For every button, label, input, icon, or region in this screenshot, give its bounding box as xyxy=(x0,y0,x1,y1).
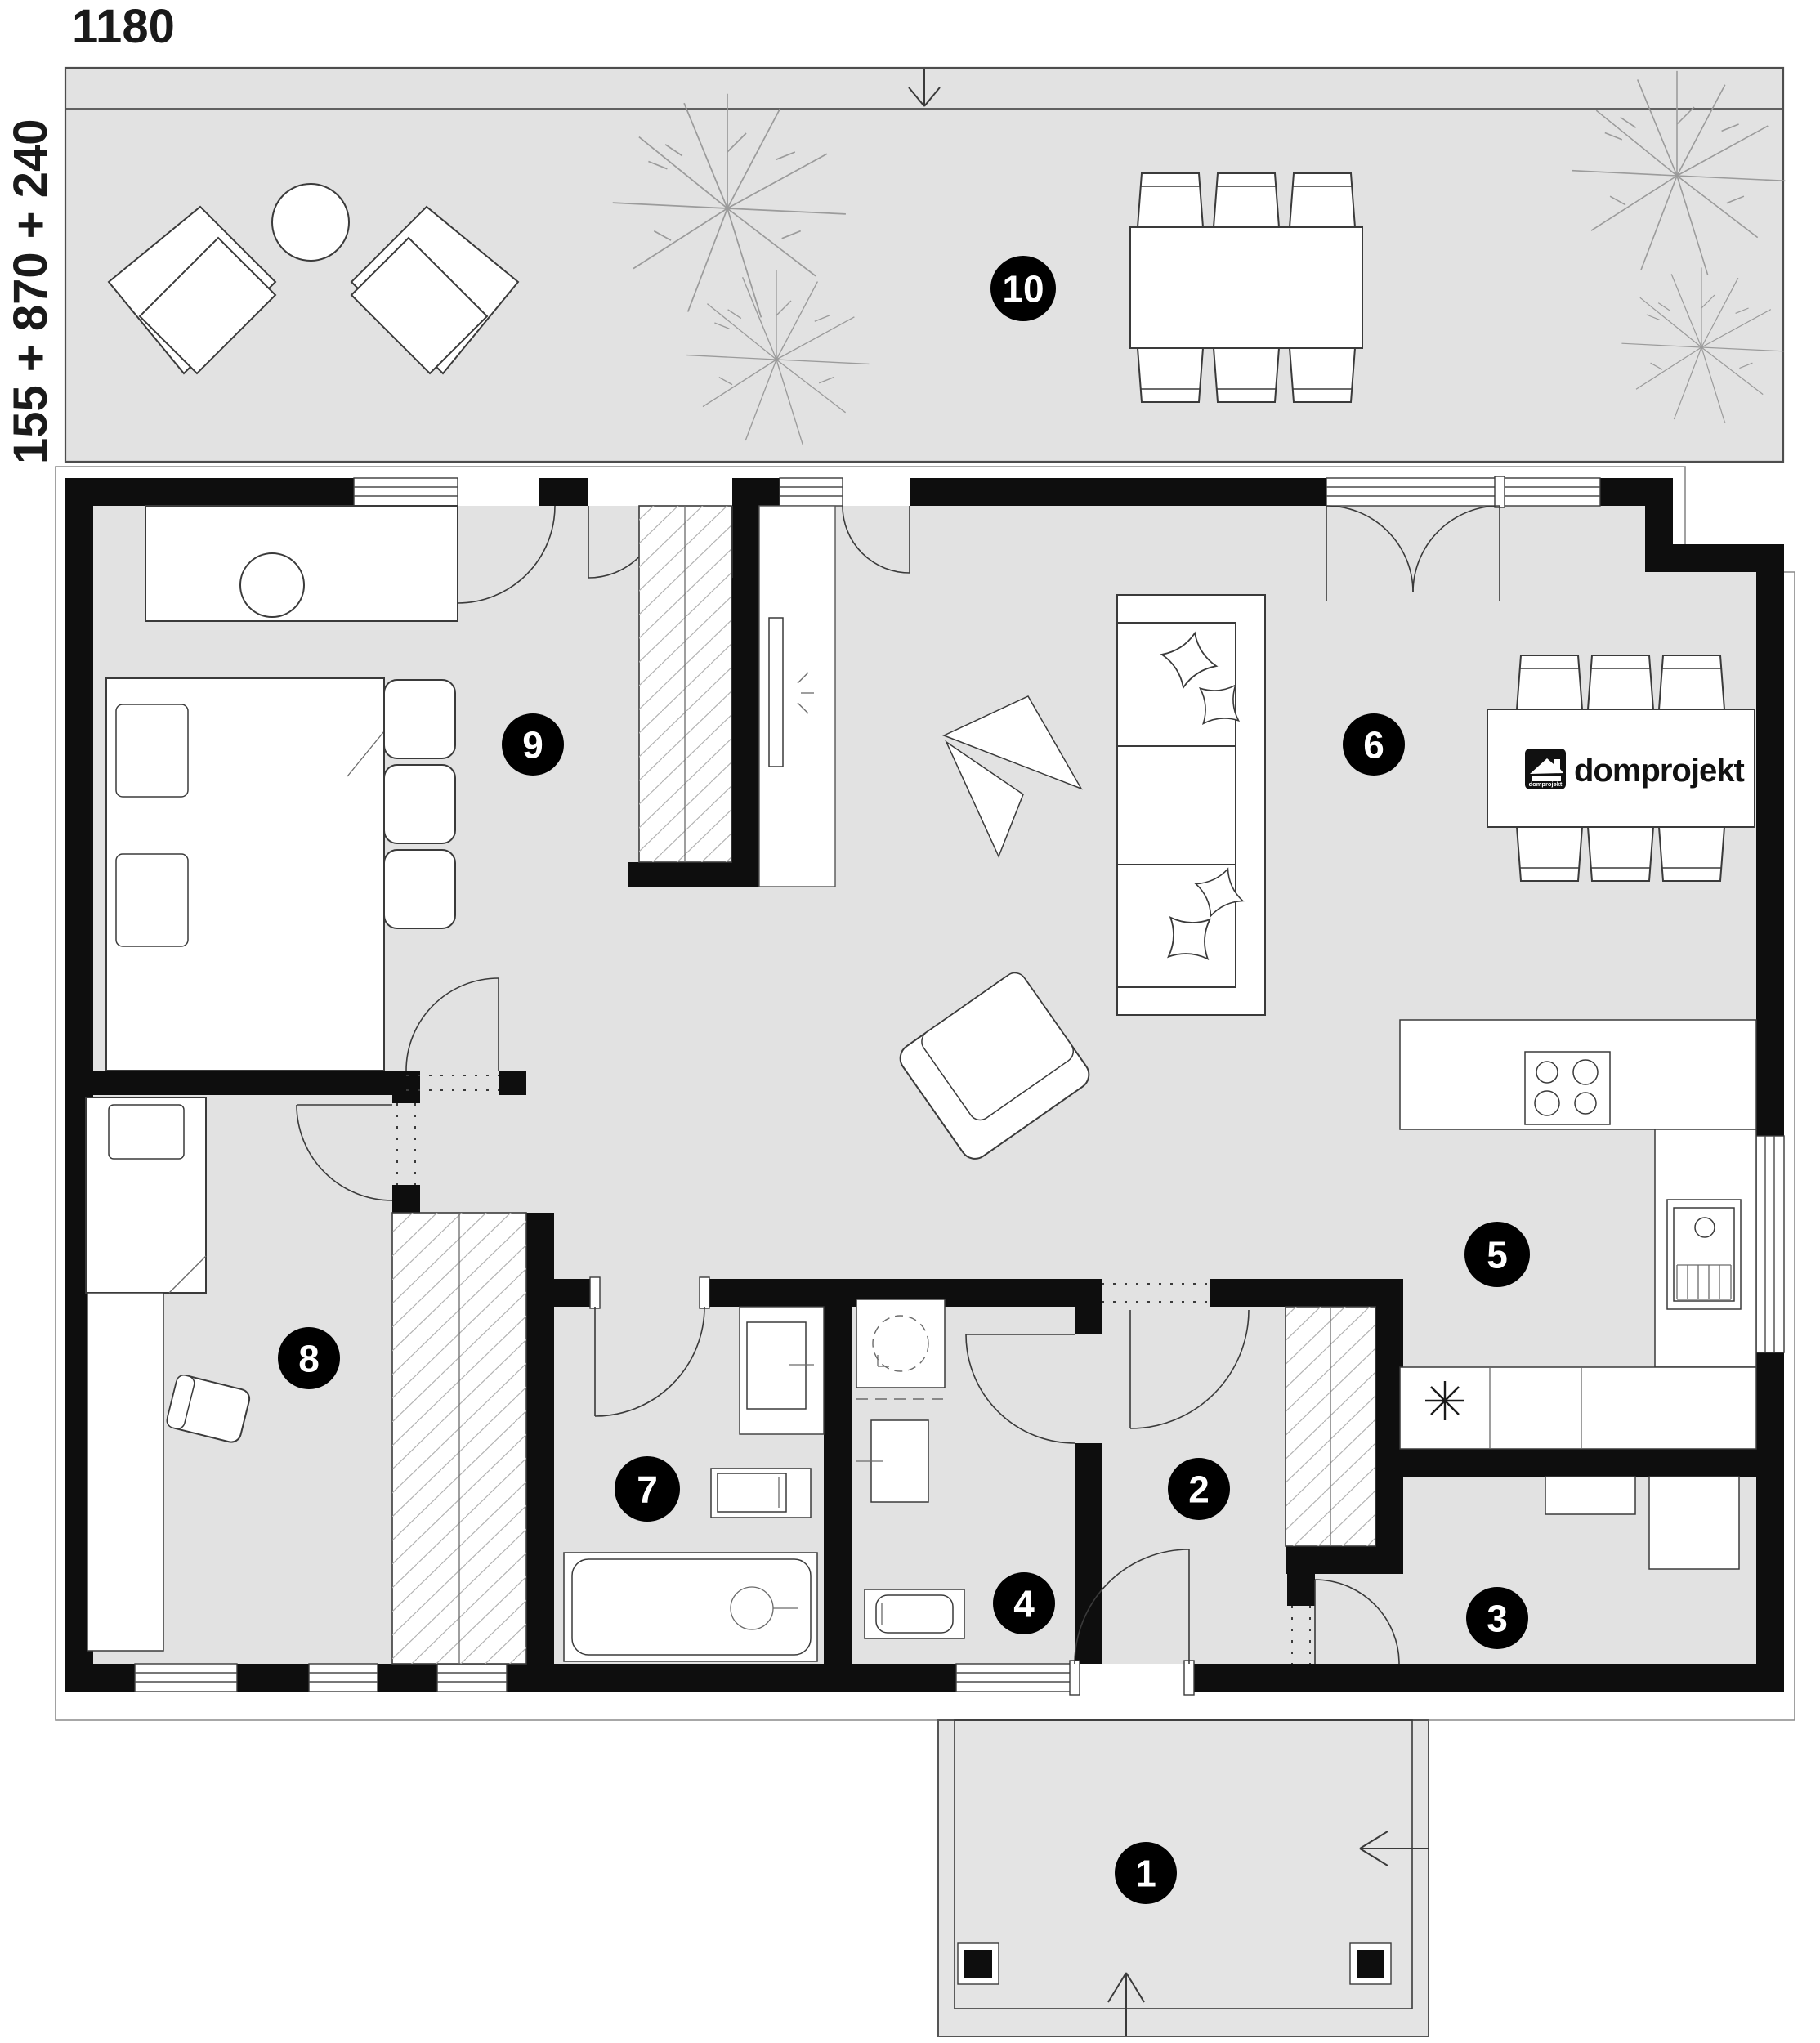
dimension-left: 155 + 870 + 240 xyxy=(4,118,57,464)
toilet xyxy=(865,1589,964,1638)
brand-icon-text: domprojekt xyxy=(1529,780,1563,788)
terrace xyxy=(65,68,1785,462)
room-label-5: 5 xyxy=(1464,1222,1530,1287)
room-label-10: 10 xyxy=(990,256,1056,321)
svg-text:10: 10 xyxy=(1002,268,1044,311)
single-bed xyxy=(86,1097,206,1293)
appliance-asterisk-icon xyxy=(1425,1381,1464,1420)
terrace-dining-set xyxy=(1130,173,1362,402)
room-label-2: 2 xyxy=(1168,1458,1230,1520)
porch-column xyxy=(1350,1943,1391,1984)
svg-text:3: 3 xyxy=(1487,1598,1508,1640)
cooktop xyxy=(1525,1052,1610,1124)
room-label-9: 9 xyxy=(502,713,564,776)
bathtub xyxy=(564,1553,817,1661)
svg-text:5: 5 xyxy=(1487,1234,1508,1276)
tv xyxy=(769,618,783,767)
entrance-porch xyxy=(938,1720,1429,2036)
room-label-7: 7 xyxy=(615,1456,680,1522)
room-label-6: 6 xyxy=(1343,713,1405,776)
floor-plan-canvas: 1180 155 + 870 + 240 xyxy=(0,0,1820,2043)
svg-text:4: 4 xyxy=(1013,1583,1035,1625)
washing-machine-wc xyxy=(856,1299,945,1399)
svg-text:6: 6 xyxy=(1363,724,1384,767)
room-label-3: 3 xyxy=(1466,1587,1528,1649)
kitchen-sink xyxy=(1667,1200,1741,1309)
terrace-side-table xyxy=(272,184,349,261)
room3-desk xyxy=(1545,1477,1635,1514)
svg-text:8: 8 xyxy=(298,1338,320,1380)
media-wall xyxy=(759,506,835,887)
brand-logo: domprojekt domprojekt xyxy=(1525,749,1744,789)
svg-text:7: 7 xyxy=(637,1469,658,1511)
washbasin xyxy=(747,1322,806,1409)
room3-desk-return xyxy=(1649,1477,1739,1569)
room8-desk xyxy=(87,1293,163,1651)
room-label-4: 4 xyxy=(993,1572,1055,1634)
porch-column xyxy=(958,1943,999,1984)
wardrobe-room8 xyxy=(392,1213,526,1664)
brand-name: domprojekt xyxy=(1574,753,1744,789)
svg-text:2: 2 xyxy=(1188,1469,1210,1511)
washing-machine-bath xyxy=(711,1469,811,1518)
svg-text:1: 1 xyxy=(1135,1853,1156,1895)
wardrobe-bedroom xyxy=(639,506,731,862)
dining-set: domprojekt domprojekt xyxy=(1487,655,1755,881)
sofa xyxy=(1117,595,1265,1015)
desk-chair xyxy=(240,553,304,617)
dimension-top: 1180 xyxy=(72,0,175,53)
svg-text:9: 9 xyxy=(522,724,543,767)
room-label-1: 1 xyxy=(1115,1842,1177,1904)
wardrobe-hall xyxy=(1286,1307,1375,1546)
room-label-8: 8 xyxy=(278,1327,340,1389)
bedroom-desk xyxy=(145,506,458,621)
